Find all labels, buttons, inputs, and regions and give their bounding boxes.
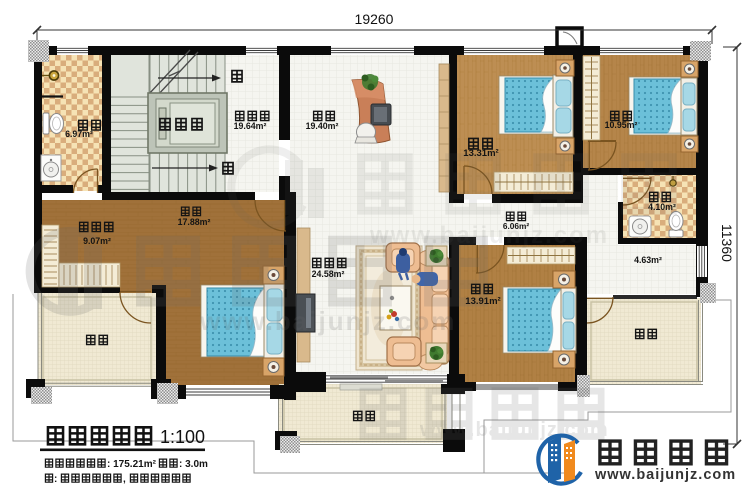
svg-text::: : xyxy=(54,474,57,485)
svg-text:4.63m²: 4.63m² xyxy=(634,255,662,265)
svg-text:6.06m²: 6.06m² xyxy=(503,221,530,231)
svg-text:13.91m²: 13.91m² xyxy=(465,296,500,307)
svg-text:13.31m²: 13.31m² xyxy=(463,148,498,159)
svg-text:17.88m²: 17.88m² xyxy=(178,217,211,227)
svg-text:: 3.0m: : 3.0m xyxy=(179,459,208,470)
svg-text:10.95m²: 10.95m² xyxy=(605,120,638,130)
svg-text:6.97m²: 6.97m² xyxy=(65,129,93,139)
svg-text:19260: 19260 xyxy=(355,11,394,27)
svg-text:: 175.21m²: : 175.21m² xyxy=(107,459,157,470)
svg-text:19.64m²: 19.64m² xyxy=(234,121,267,131)
svg-text:www.baijunjz.com: www.baijunjz.com xyxy=(594,467,736,483)
svg-text:11360: 11360 xyxy=(719,224,735,262)
svg-text:4.10m²: 4.10m² xyxy=(648,202,676,212)
svg-text:24.58m²: 24.58m² xyxy=(312,269,345,279)
svg-text:www.baijunjz.com: www.baijunjz.com xyxy=(419,419,609,441)
svg-text:19.40m²: 19.40m² xyxy=(306,121,339,131)
svg-text:1:100: 1:100 xyxy=(160,427,205,447)
svg-text:www.baijunjz.com: www.baijunjz.com xyxy=(199,306,456,336)
svg-text:,: , xyxy=(123,474,126,485)
svg-text:www.baijunjz.com: www.baijunjz.com xyxy=(369,222,609,249)
svg-text:9.07m²: 9.07m² xyxy=(83,236,111,246)
